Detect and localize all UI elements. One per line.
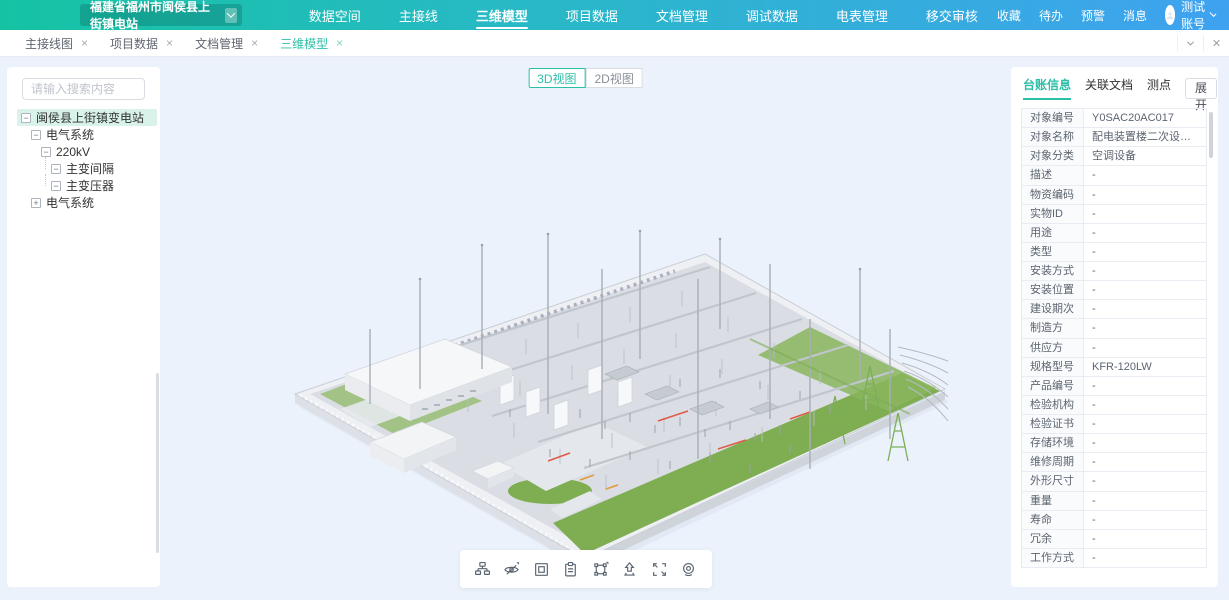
tree-item[interactable]: − 220kV — [17, 143, 157, 160]
view-mode-toggle: 3D视图 2D视图 — [528, 68, 643, 88]
user-name: 测试账号 — [1181, 0, 1205, 32]
property-value: 配电装置楼二次设备室柜式空... — [1084, 128, 1206, 146]
tree-item[interactable]: + 电气系统 — [17, 194, 157, 211]
chevron-down-icon — [225, 8, 236, 23]
close-icon[interactable]: × — [336, 36, 343, 50]
property-label: 描述 — [1022, 166, 1084, 184]
table-row: 规格型号 KFR-120LW — [1021, 358, 1207, 377]
property-label: 存储环境 — [1022, 434, 1084, 452]
fullscreen-icon[interactable] — [647, 557, 671, 581]
property-label: 维修周期 — [1022, 453, 1084, 471]
property-label: 对象分类 — [1022, 147, 1084, 165]
table-row: 类型 - — [1021, 243, 1207, 262]
property-value: - — [1084, 319, 1206, 337]
nav-menu-item[interactable]: 文档管理 — [637, 0, 727, 30]
property-value: - — [1084, 396, 1206, 414]
property-value: - — [1084, 243, 1206, 261]
tab-controls: ✕ — [1177, 30, 1229, 56]
property-value: - — [1084, 472, 1206, 490]
station-selector-label: 福建省福州市闽侯县上街镇电站 — [90, 0, 218, 32]
chevron-down-icon — [1210, 10, 1217, 17]
station-selector[interactable]: 福建省福州市闽侯县上街镇电站 — [80, 4, 242, 26]
open-tab[interactable]: 项目数据 × — [99, 35, 184, 52]
property-label: 规格型号 — [1022, 358, 1084, 376]
tree-expand-icon[interactable]: − — [21, 113, 31, 123]
tree-expand-icon[interactable]: − — [41, 147, 51, 157]
tree-item-label: 电气系统 — [46, 194, 94, 211]
tab-label: 文档管理 — [195, 35, 243, 52]
main-area: − 闽侯县上街镇变电站 − 电气系统 − 220kV − 主变间隔 — [0, 57, 1229, 599]
property-label: 对象编号 — [1022, 109, 1084, 127]
tree-item[interactable]: − 主变间隔 — [17, 160, 157, 177]
nav-menu-item[interactable]: 电表管理 — [817, 0, 907, 30]
open-tab[interactable]: 文档管理 × — [184, 35, 269, 52]
property-label: 寿命 — [1022, 511, 1084, 529]
property-label: 外形尺寸 — [1022, 472, 1084, 490]
table-row: 对象名称 配电装置楼二次设备室柜式空... — [1021, 128, 1207, 147]
nav-menu-item[interactable]: 主接线 — [380, 0, 457, 30]
region-select-icon[interactable] — [529, 557, 553, 581]
close-icon[interactable]: × — [251, 36, 258, 50]
property-value: - — [1084, 492, 1206, 510]
property-value: - — [1084, 530, 1206, 548]
tree-expand-icon[interactable]: − — [31, 130, 41, 140]
tab-label: 主接线图 — [25, 35, 73, 52]
property-value: Y0SAC20AC017 — [1084, 109, 1206, 127]
property-value: KFR-120LW — [1084, 358, 1206, 376]
device-tree-sidebar: − 闽侯县上街镇变电站 − 电气系统 − 220kV − 主变间隔 — [7, 67, 160, 587]
tree-item-label: 主变间隔 — [66, 160, 114, 177]
tree-item[interactable]: − 主变压器 — [17, 177, 157, 194]
table-row: 建设期次 - — [1021, 300, 1207, 319]
main-menu: 数据空间 主接线 三维模型 项目数据 文档管理 调试数据 电表管理 移交审核 — [290, 0, 997, 30]
tree-item[interactable]: − 闽侯县上街镇变电站 — [17, 109, 157, 126]
tree-item-label: 主变压器 — [66, 177, 114, 194]
tree-expand-icon[interactable]: + — [31, 198, 41, 208]
document-icon[interactable] — [559, 557, 583, 581]
ledger-panel: 台账信息 关联文档 测点 展开 对象编号 Y0SAC20AC017 对象 — [1011, 67, 1218, 587]
table-row: 检验证书 - — [1021, 415, 1207, 434]
table-row: 制造方 - — [1021, 319, 1207, 338]
property-value: - — [1084, 549, 1206, 567]
search-input[interactable] — [22, 78, 145, 100]
open-tab[interactable]: 三维模型 × — [269, 35, 354, 52]
nav-menu-item[interactable]: 数据空间 — [290, 0, 380, 30]
panel-tab[interactable]: 关联文档 — [1085, 76, 1133, 100]
close-all-icon[interactable]: ✕ — [1203, 35, 1229, 51]
property-value: - — [1084, 205, 1206, 223]
view-mode-button[interactable]: 2D视图 — [586, 68, 643, 88]
property-table-wrap: 对象编号 Y0SAC20AC017 对象名称 配电装置楼二次设备室柜式空... … — [1021, 108, 1207, 568]
tree-item[interactable]: − 电气系统 — [17, 126, 157, 143]
property-value: - — [1084, 453, 1206, 471]
property-label: 用途 — [1022, 224, 1084, 242]
device-tree: − 闽侯县上街镇变电站 − 电气系统 − 220kV − 主变间隔 — [7, 109, 160, 211]
property-value: - — [1084, 224, 1206, 242]
sidebar-scrollbar[interactable] — [156, 373, 159, 553]
model-viewport[interactable]: 3D视图 2D视图 — [160, 57, 1011, 599]
table-row: 描述 - — [1021, 166, 1207, 185]
table-scrollbar[interactable] — [1209, 112, 1213, 158]
property-value: - — [1084, 262, 1206, 280]
table-row: 寿命 - — [1021, 511, 1207, 530]
property-value: - — [1084, 166, 1206, 184]
quick-link[interactable]: 待办 — [1039, 7, 1063, 24]
tab-bar: 主接线图 × 项目数据 × 文档管理 × 三维模型 × ✕ — [0, 30, 1229, 57]
top-navbar: 福建省福州市闽侯县上街镇电站 数据空间 主接线 三维模型 项目数据 文档管理 调… — [0, 0, 1229, 30]
property-value: - — [1084, 415, 1206, 433]
avatar — [1165, 5, 1175, 25]
property-value: - — [1084, 434, 1206, 452]
property-table: 对象编号 Y0SAC20AC017 对象名称 配电装置楼二次设备室柜式空... … — [1021, 108, 1207, 568]
table-row: 检验机构 - — [1021, 396, 1207, 415]
chevron-down-icon[interactable] — [1177, 35, 1203, 51]
nav-menu-item[interactable]: 三维模型 — [457, 0, 547, 30]
property-label: 安装位置 — [1022, 281, 1084, 299]
table-row: 工作方式 - — [1021, 549, 1207, 568]
tab-label: 三维模型 — [280, 35, 328, 52]
expand-button[interactable]: 展开 — [1185, 78, 1217, 99]
visibility-off-icon[interactable] — [500, 557, 524, 581]
table-row: 存储环境 - — [1021, 434, 1207, 453]
move-up-icon[interactable] — [618, 557, 642, 581]
quick-link[interactable]: 收藏 — [997, 7, 1021, 24]
panel-header: 台账信息 关联文档 测点 展开 — [1011, 67, 1218, 99]
model-toolbar — [460, 550, 712, 588]
tab-label: 项目数据 — [110, 35, 158, 52]
tree-expand-icon[interactable]: − — [51, 164, 61, 174]
user-menu[interactable]: 测试账号 — [1165, 0, 1215, 32]
nav-menu-item[interactable]: 移交审核 — [907, 0, 997, 30]
property-label: 对象名称 — [1022, 128, 1084, 146]
quick-link[interactable]: 消息 — [1123, 7, 1147, 24]
property-label: 重量 — [1022, 492, 1084, 510]
hierarchy-icon[interactable] — [470, 557, 494, 581]
panel-tab[interactable]: 测点 — [1147, 76, 1171, 100]
property-value: - — [1084, 377, 1206, 395]
property-label: 建设期次 — [1022, 300, 1084, 318]
property-label: 制造方 — [1022, 319, 1084, 337]
table-row: 实物ID - — [1021, 205, 1207, 224]
nav-menu-item[interactable]: 调试数据 — [727, 0, 817, 30]
property-label: 类型 — [1022, 243, 1084, 261]
table-row: 供应方 - — [1021, 339, 1207, 358]
table-row: 对象编号 Y0SAC20AC017 — [1021, 109, 1207, 128]
transform-icon[interactable] — [588, 557, 612, 581]
open-tab[interactable]: 主接线图 × — [14, 35, 99, 52]
property-value: - — [1084, 339, 1206, 357]
navbar-right: 收藏 待办 预警 消息 测试账号 — [997, 0, 1215, 32]
quick-link[interactable]: 预警 — [1081, 7, 1105, 24]
close-icon[interactable]: × — [166, 36, 173, 50]
camera-icon[interactable] — [677, 557, 701, 581]
table-row: 安装方式 - — [1021, 262, 1207, 281]
property-label: 供应方 — [1022, 339, 1084, 357]
property-label: 检验证书 — [1022, 415, 1084, 433]
table-row: 重量 - — [1021, 492, 1207, 511]
tree-item-label: 电气系统 — [46, 126, 94, 143]
table-row: 维修周期 - — [1021, 453, 1207, 472]
property-label: 产品编号 — [1022, 377, 1084, 395]
property-value: - — [1084, 300, 1206, 318]
property-label: 检验机构 — [1022, 396, 1084, 414]
property-label: 实物ID — [1022, 205, 1084, 223]
view-mode-button[interactable]: 3D视图 — [528, 68, 585, 88]
substation-3d-model — [250, 209, 950, 600]
panel-tab[interactable]: 台账信息 — [1023, 76, 1071, 100]
table-row: 对象分类 空调设备 — [1021, 147, 1207, 166]
property-label: 物资编码 — [1022, 186, 1084, 204]
tree-item-label: 闽侯县上街镇变电站 — [36, 109, 144, 126]
property-value: 空调设备 — [1084, 147, 1206, 165]
property-label: 安装方式 — [1022, 262, 1084, 280]
property-value: - — [1084, 281, 1206, 299]
close-icon[interactable]: × — [81, 36, 88, 50]
table-row: 外形尺寸 - — [1021, 472, 1207, 491]
property-label: 工作方式 — [1022, 549, 1084, 567]
tree-item-label: 220kV — [56, 145, 90, 159]
nav-menu-item[interactable]: 项目数据 — [547, 0, 637, 30]
tree-expand-icon[interactable]: − — [51, 181, 61, 191]
tree-search — [22, 78, 145, 100]
table-row: 用途 - — [1021, 224, 1207, 243]
property-value: - — [1084, 511, 1206, 529]
table-row: 产品编号 - — [1021, 377, 1207, 396]
table-row: 冗余 - — [1021, 530, 1207, 549]
property-value: - — [1084, 186, 1206, 204]
table-row: 物资编码 - — [1021, 186, 1207, 205]
property-label: 冗余 — [1022, 530, 1084, 548]
table-row: 安装位置 - — [1021, 281, 1207, 300]
